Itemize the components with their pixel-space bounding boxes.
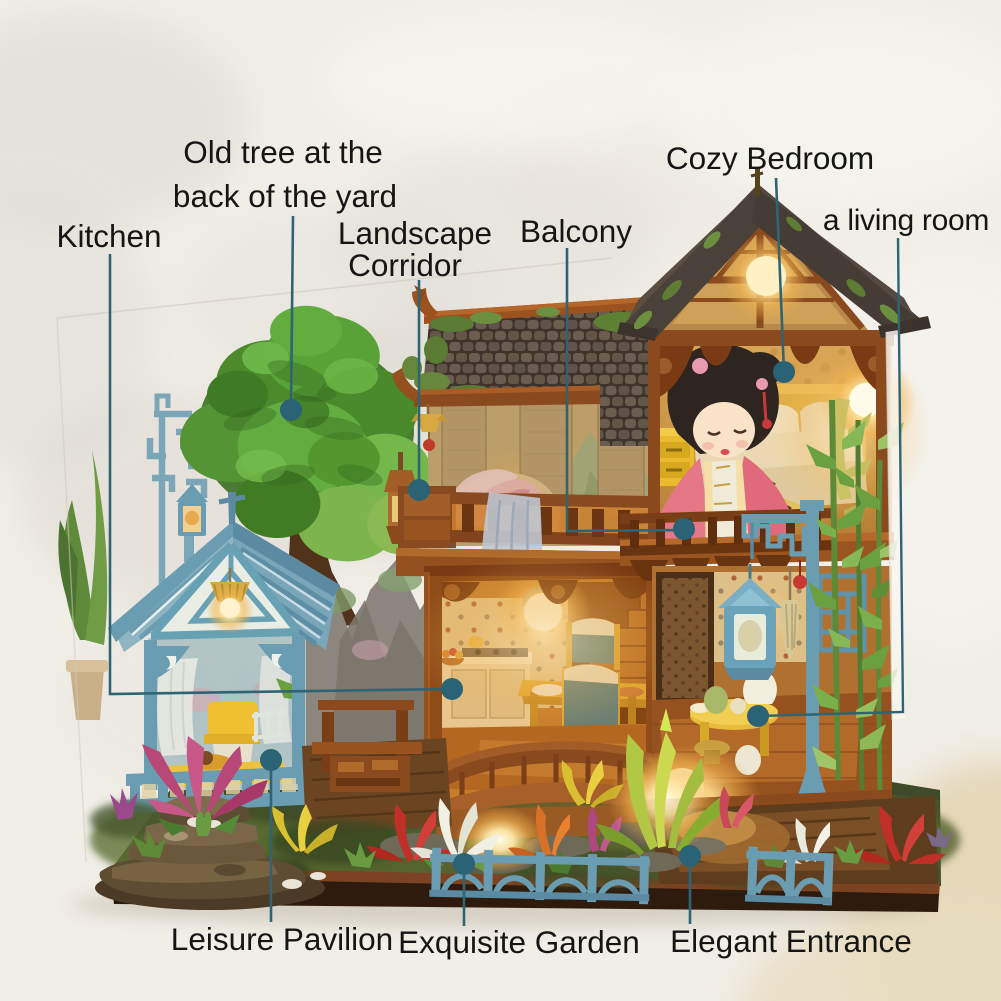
svg-text:Landscape: Landscape: [338, 215, 492, 251]
svg-text:Exquisite Garden: Exquisite Garden: [398, 924, 640, 960]
svg-text:Corridor: Corridor: [348, 247, 462, 283]
svg-text:Old tree at the: Old tree at the: [183, 134, 383, 170]
svg-text:Cozy Bedroom: Cozy Bedroom: [666, 140, 874, 176]
svg-text:Elegant Entrance: Elegant Entrance: [670, 923, 912, 959]
svg-text:back of the yard: back of the yard: [173, 178, 397, 214]
svg-text:Kitchen: Kitchen: [56, 218, 161, 254]
svg-text:Balcony: Balcony: [520, 213, 632, 249]
svg-text:a living room: a living room: [823, 204, 989, 237]
svg-text:Leisure Pavilion: Leisure Pavilion: [171, 921, 393, 957]
